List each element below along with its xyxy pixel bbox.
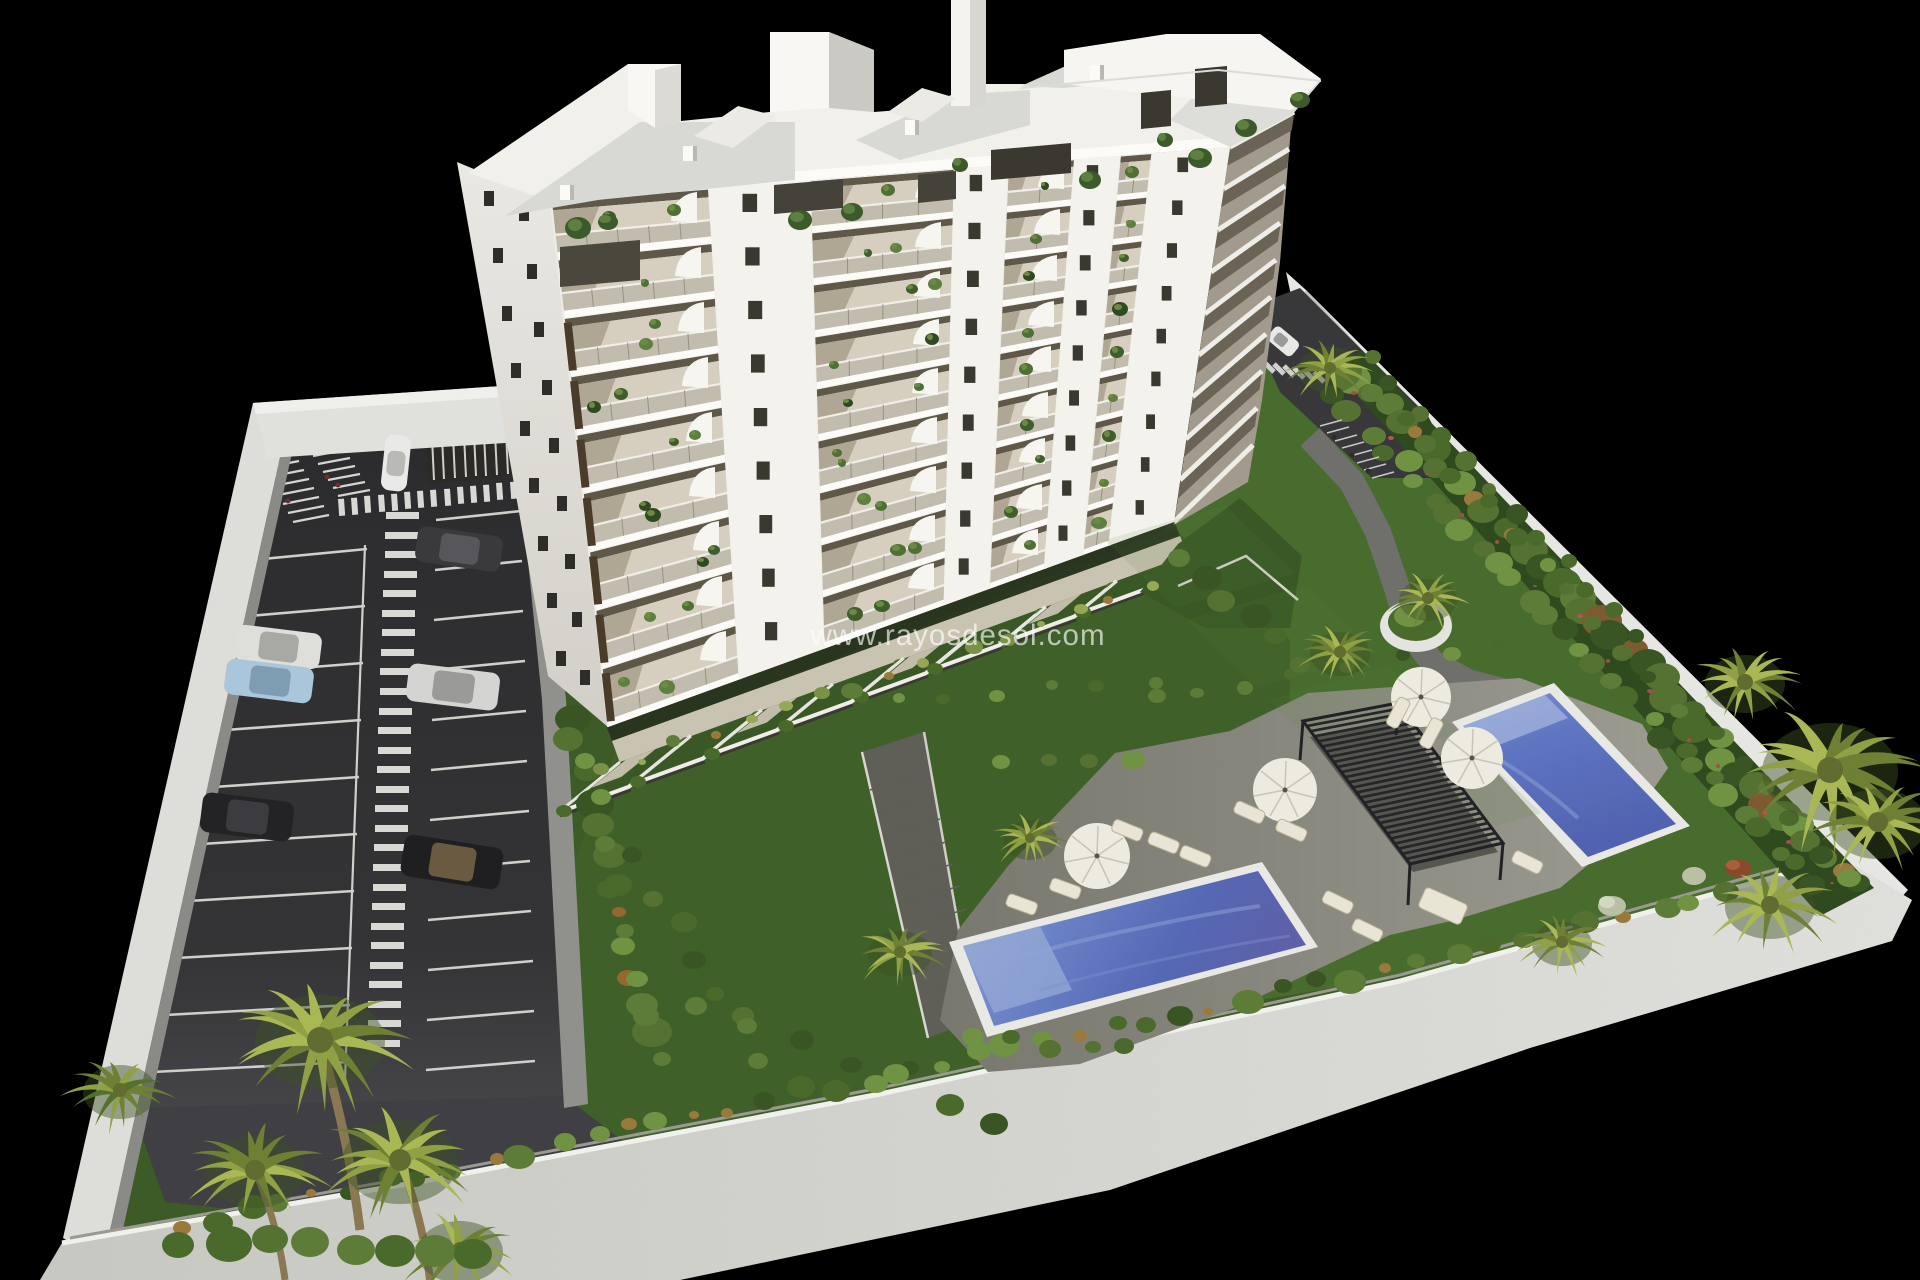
svg-text:www.rayosdesol.com: www.rayosdesol.com: [809, 619, 1105, 652]
